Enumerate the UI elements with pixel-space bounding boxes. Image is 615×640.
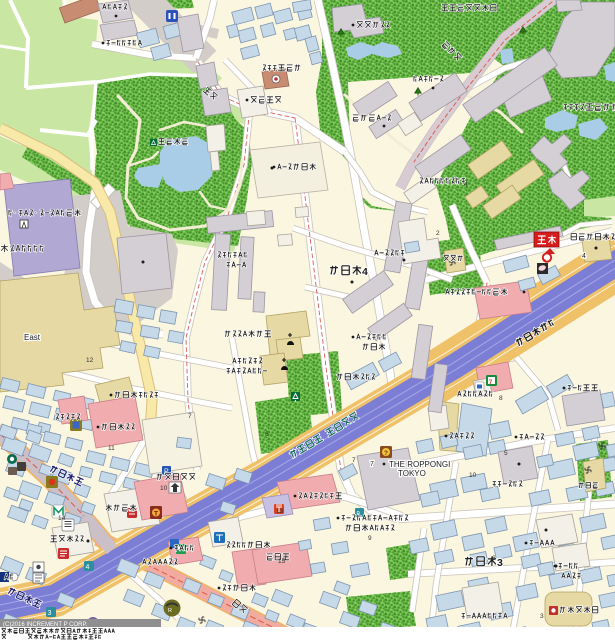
svg-text:14: 14	[58, 515, 66, 522]
svg-text:10: 10	[469, 472, 477, 479]
svg-text:4: 4	[86, 564, 90, 571]
svg-text:9: 9	[368, 535, 372, 542]
svg-text:T: T	[154, 511, 158, 518]
svg-text:7: 7	[188, 413, 192, 420]
svg-text:10: 10	[160, 485, 168, 492]
svg-text:15: 15	[278, 558, 286, 565]
svg-text:2: 2	[436, 230, 440, 237]
svg-text:TOKYO: TOKYO	[398, 469, 426, 478]
svg-text:8: 8	[499, 395, 503, 402]
svg-text:4: 4	[582, 253, 586, 260]
svg-text:3: 3	[540, 613, 544, 620]
svg-text:?: ?	[384, 450, 388, 457]
svg-text:3: 3	[48, 610, 52, 617]
svg-text:3: 3	[497, 557, 503, 569]
svg-text:7: 7	[489, 379, 493, 386]
svg-text:4: 4	[362, 266, 368, 278]
svg-text:6: 6	[492, 555, 496, 562]
svg-text:7: 7	[370, 461, 374, 468]
svg-text:THE ROPPONGI: THE ROPPONGI	[389, 460, 450, 469]
svg-text:7: 7	[352, 457, 356, 464]
svg-text:13: 13	[276, 508, 284, 515]
svg-text:11: 11	[108, 445, 115, 452]
svg-text:12: 12	[86, 357, 94, 364]
svg-text:6: 6	[265, 431, 269, 438]
svg-text:5: 5	[504, 450, 508, 457]
svg-text:R: R	[168, 608, 172, 614]
svg-text:East: East	[24, 333, 41, 342]
svg-text:4: 4	[464, 181, 468, 188]
